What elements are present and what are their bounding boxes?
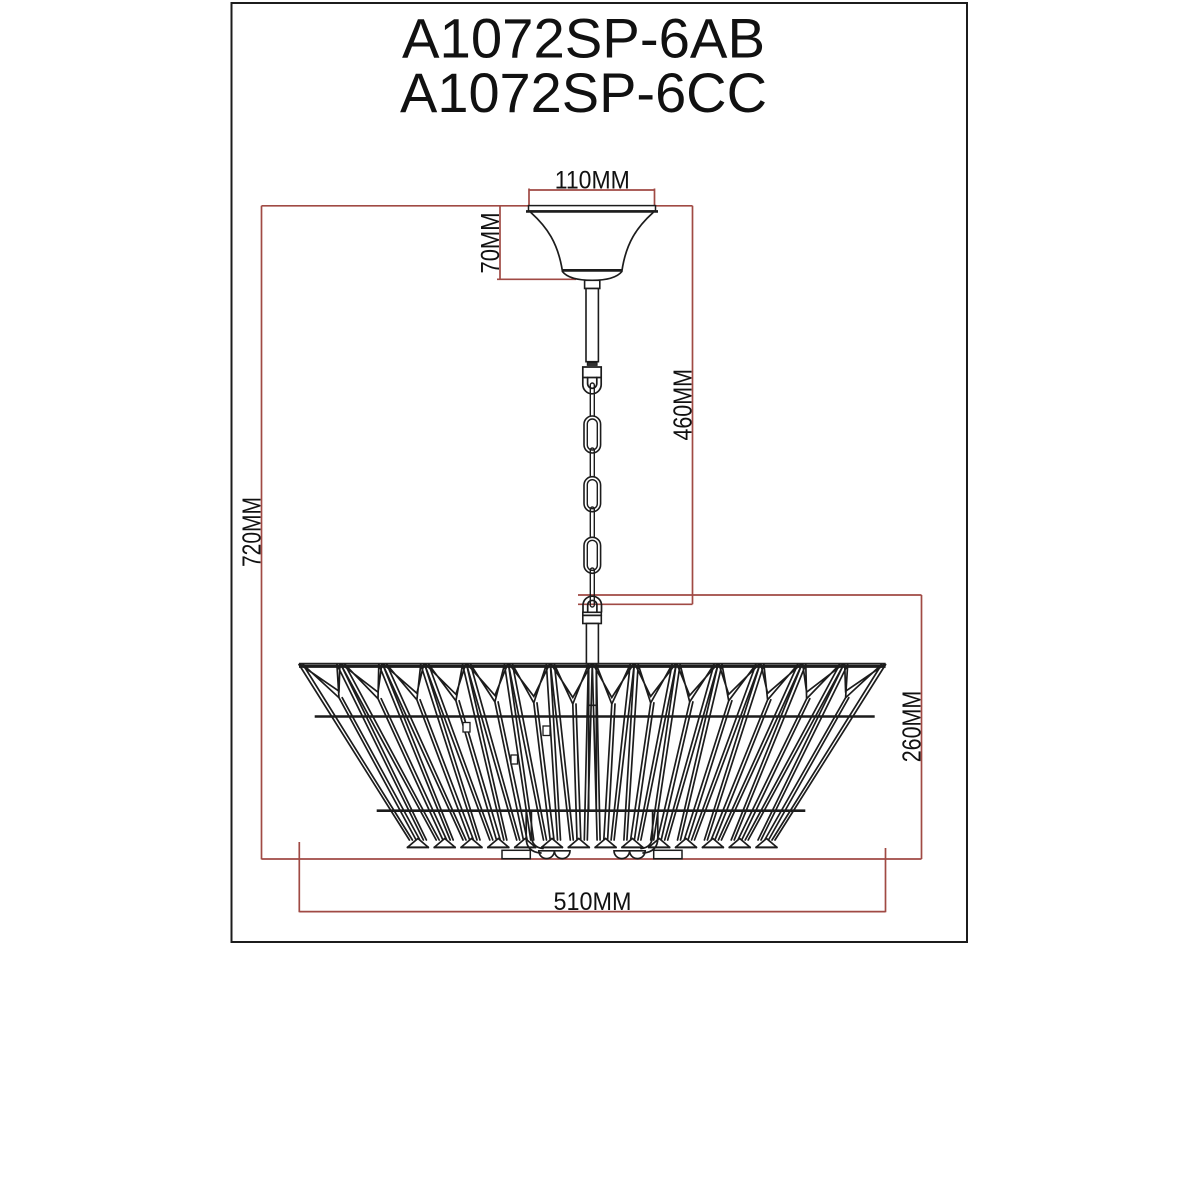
svg-text:510MM: 510MM — [554, 888, 632, 916]
svg-text:A1072SP-6CC: A1072SP-6CC — [400, 61, 767, 124]
svg-text:110MM: 110MM — [555, 167, 630, 195]
svg-text:720MM: 720MM — [236, 497, 266, 567]
svg-text:70MM: 70MM — [475, 213, 505, 274]
svg-text:460MM: 460MM — [667, 369, 697, 441]
svg-text:260MM: 260MM — [896, 691, 926, 763]
